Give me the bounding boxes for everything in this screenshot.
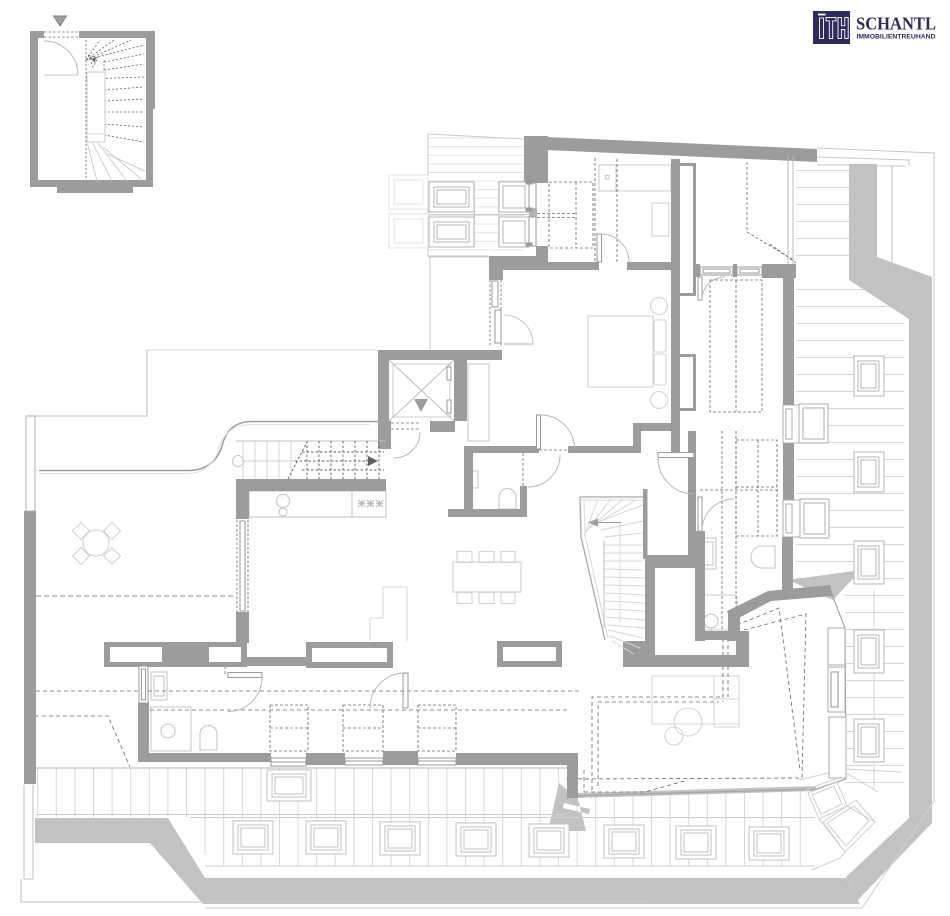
svg-text:SCHANTL: SCHANTL <box>856 14 936 34</box>
svg-text:IMMOBILIENTREUHAND: IMMOBILIENTREUHAND <box>857 34 937 41</box>
